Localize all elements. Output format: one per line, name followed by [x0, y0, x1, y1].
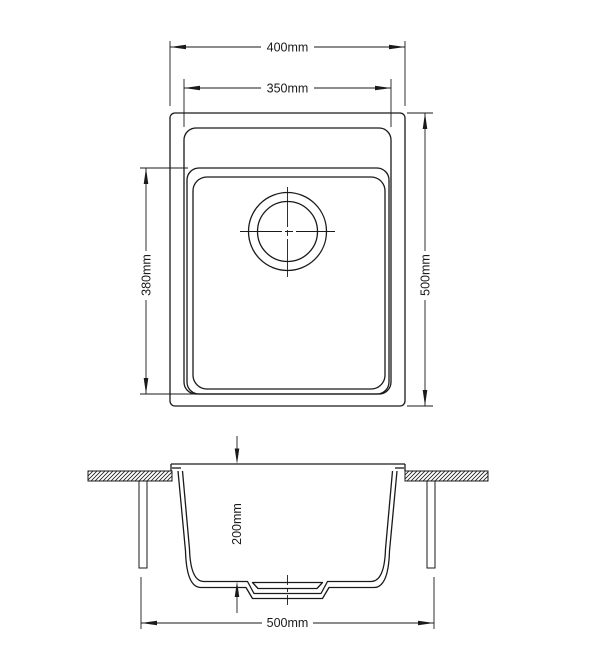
arrow-down-icon: [423, 390, 428, 406]
plan-outer-length-label: 500mm: [419, 254, 433, 296]
arrow-right-icon: [375, 86, 391, 91]
plan-view: 400mm 350mm 500mm: [140, 41, 434, 407]
arrow-up-icon: [423, 113, 428, 129]
dimension-plan-rim-width: 350mm: [184, 79, 391, 127]
arrow-down-icon: [144, 378, 149, 394]
dimension-plan-bowl-length: 380mm: [140, 168, 195, 394]
section-base-width-label: 500mm: [267, 616, 309, 630]
arrow-up-icon: [144, 168, 149, 184]
dimension-section-bowl-depth: 200mm: [230, 436, 244, 613]
cabinet-side-right: [427, 481, 435, 568]
arrow-down-icon: [235, 449, 240, 465]
countertop-right: [405, 471, 488, 481]
dimension-plan-outer-width: 400mm: [170, 41, 405, 107]
arrow-left-icon: [141, 621, 157, 626]
arrow-left-icon: [170, 45, 186, 50]
countertop-left: [88, 471, 172, 481]
plan-rim-width-label: 350mm: [267, 82, 309, 96]
section-rim: [171, 464, 405, 471]
arrow-left-icon: [184, 86, 200, 91]
plan-bowl-inner-outline: [193, 177, 385, 389]
plan-outer-width-label: 400mm: [267, 41, 309, 55]
arrow-right-icon: [418, 621, 434, 626]
sink-technical-drawing: 400mm 350mm 500mm: [0, 0, 606, 652]
drawing-canvas: 400mm 350mm 500mm: [0, 0, 606, 652]
plan-bowl-length-label: 380mm: [140, 254, 154, 296]
drain-symbol: [240, 187, 335, 277]
arrow-right-icon: [389, 45, 405, 50]
arrow-up-icon: [235, 582, 240, 598]
cabinet-side-left: [139, 481, 147, 568]
section-view: 200mm 500mm: [88, 436, 488, 630]
dimension-plan-outer-length: 500mm: [407, 113, 433, 406]
section-bowl-depth-label: 200mm: [230, 503, 244, 545]
